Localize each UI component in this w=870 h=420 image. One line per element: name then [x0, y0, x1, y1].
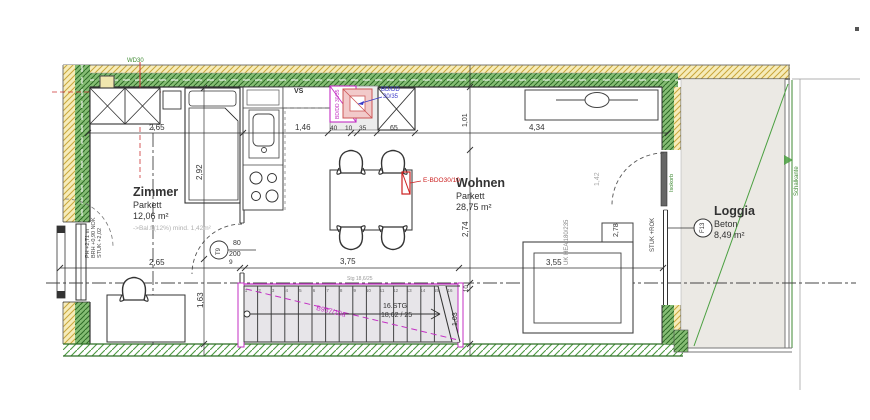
desk-chair	[120, 278, 148, 302]
stair-tread-number: 8	[335, 288, 347, 293]
dim-top-right: 1,01	[462, 113, 469, 127]
dim-zimmer-width: 2,65	[149, 124, 165, 132]
stair-tread-number: 9	[349, 288, 361, 293]
door-height: 200	[229, 251, 241, 258]
dining-chair	[337, 226, 365, 250]
stair-tread-number: 2	[254, 288, 266, 293]
stair-tread-number: 6	[308, 288, 320, 293]
nightstand	[163, 91, 181, 109]
dining-chair	[379, 151, 407, 175]
stair-tread-number: 11	[376, 288, 388, 293]
room-name-zimmer: Zimmer	[133, 186, 178, 199]
dim-wohnen-bottom: 3,55	[546, 259, 562, 267]
dim-desk: 1,63	[197, 292, 205, 308]
dim-hall: 3,75	[340, 258, 356, 266]
stair-tread-number: 16	[444, 288, 456, 293]
dining-chair	[379, 226, 407, 250]
stuk-rok-label: STUK +ROK	[650, 218, 656, 252]
loggia-tag: F13	[700, 223, 706, 233]
dim-shaft-b: 10	[345, 126, 352, 133]
dim-loggia-door: 1,42	[594, 172, 601, 186]
shaft-chimney	[330, 86, 415, 130]
stair-tread-number: 10	[362, 288, 374, 293]
dim-shaft-a: 40	[330, 126, 337, 133]
floor-plan: Zimmer Parkett 12,06 m² ->Bal.f.(12%) mi…	[0, 0, 870, 420]
uk-hea-label: UK HEA 180/235	[564, 220, 570, 265]
dining-table	[330, 170, 412, 230]
isokorb-label: Isokorb	[670, 174, 676, 192]
loggia-structure	[667, 27, 860, 390]
room-name-loggia: Loggia	[714, 205, 755, 218]
dim-sofa: 2,78	[613, 223, 620, 237]
dim-small-right: 10	[464, 285, 470, 292]
dim-stair-right: 1,03	[452, 312, 459, 326]
bd-dd-label-line1: BD/DD	[381, 87, 400, 93]
dim-wohnen-width: 4,34	[529, 124, 545, 132]
window-stuk-label: STUK +2,02	[98, 228, 104, 258]
dim-bed: 2,92	[196, 164, 204, 180]
stair-tread-number: 4	[281, 288, 293, 293]
dim-kitchen: 1,46	[295, 124, 311, 132]
sideboard	[525, 90, 658, 120]
kitchen	[243, 87, 332, 210]
room-note-zimmer: ->Bal.f.(12%) mind. 1,42m²	[133, 226, 211, 233]
stair-tread-number: 12	[390, 288, 402, 293]
bd-dd-label-line2: 30/35	[383, 94, 398, 100]
stair-note: Stg 18,6/25	[347, 277, 373, 282]
room-area-loggia: 8,49 m²	[714, 231, 745, 240]
room-floor-loggia: Beton	[714, 220, 738, 229]
shaft-text: BD/DD 30/35	[336, 90, 341, 119]
desk	[107, 295, 185, 342]
room-name-wohnen: Wohnen	[456, 177, 505, 190]
dim-shaft-c: 35	[359, 126, 366, 133]
door-tag: T9	[216, 248, 222, 255]
stair-tread-number: 5	[294, 288, 306, 293]
room-area-zimmer: 12,06 m²	[133, 212, 169, 221]
dim-chimney: 65	[390, 125, 398, 132]
stair-tread-number: 7	[322, 288, 334, 293]
sofa	[523, 242, 633, 333]
room-floor-wohnen: Parkett	[456, 192, 485, 201]
stair-steps-label: 16.STG	[383, 303, 407, 310]
stair-tread-number: 14	[417, 288, 429, 293]
dim-mid-right: 2,74	[462, 221, 470, 237]
door-width: 80	[233, 240, 241, 247]
stair-tread-number: 13	[403, 288, 415, 293]
wardrobe	[90, 88, 160, 124]
room-area-wohnen: 28,75 m²	[456, 203, 492, 212]
dining-chair	[337, 151, 365, 175]
schalkante-label: Schalkante	[794, 166, 800, 196]
room-floor-zimmer: Parkett	[133, 201, 162, 210]
stair-tread-number: 15	[430, 288, 442, 293]
dim-zimmer-bottom: 2,65	[149, 259, 165, 267]
bed	[185, 88, 240, 203]
e-bdo-label: E-BDO30/10	[423, 178, 460, 185]
stair-ratio-label: 18,62 / 25	[381, 312, 412, 319]
stair-tread-number: 3	[267, 288, 279, 293]
dim-door-jamb: 9	[229, 260, 233, 267]
wd30-label: WD30	[127, 58, 144, 64]
stair-tread-number: 1	[240, 288, 252, 293]
vs-shaft-label: VS	[294, 88, 303, 95]
